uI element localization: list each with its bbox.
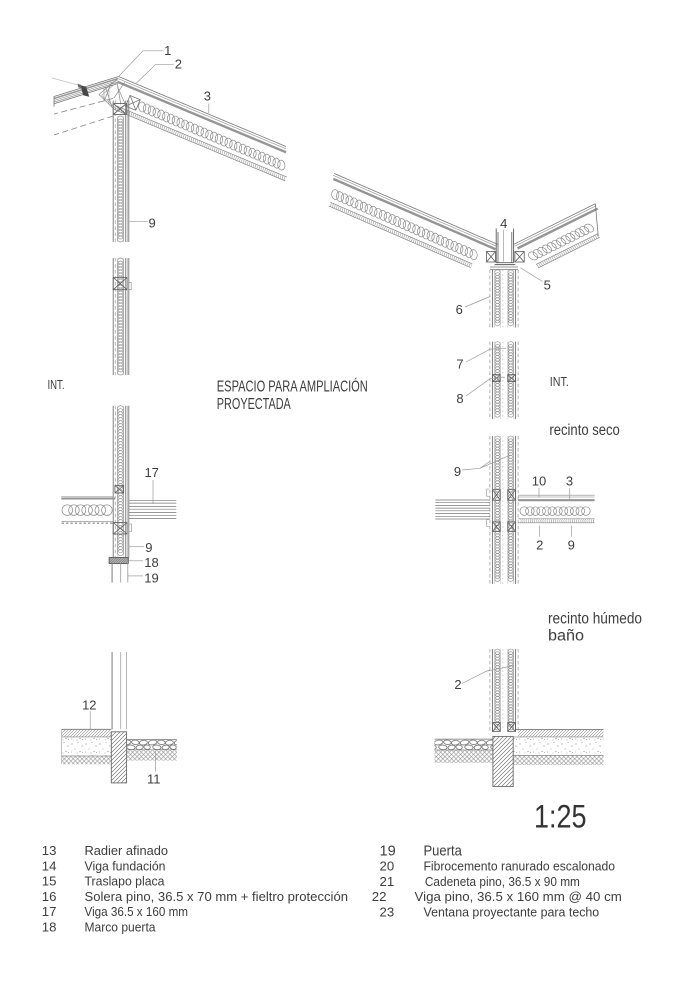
svg-text:22: 22	[372, 889, 387, 904]
svg-text:Solera pino, 36.5 x 70 mm: Solera pino, 36.5 x 70 mm + fieltro prot…	[85, 889, 349, 904]
svg-text:18: 18	[144, 555, 158, 570]
svg-text:Viga fundación: Viga fundación	[85, 858, 166, 873]
svg-text:1:25: 1:25	[534, 798, 587, 834]
svg-text:10: 10	[532, 474, 546, 489]
svg-text:9: 9	[568, 537, 575, 552]
svg-text:9: 9	[145, 540, 152, 555]
svg-text:20: 20	[380, 859, 395, 874]
svg-text:Radier afinado: Radier afinado	[85, 843, 169, 858]
svg-text:Viga pino, 36.5 x 160 m: Viga pino, 36.5 x 160 mm @ 40 cm	[415, 889, 622, 904]
svg-text:Viga 36.5 x 160 mm: Viga 36.5 x 160 mm	[85, 904, 189, 919]
svg-text:Puerta: Puerta	[424, 843, 463, 859]
svg-text:5: 5	[544, 277, 551, 292]
svg-text:3: 3	[204, 88, 211, 103]
svg-text:19: 19	[380, 843, 396, 859]
svg-text:6: 6	[456, 302, 463, 317]
svg-text:recinto húmedo: recinto húmedo	[548, 611, 642, 628]
svg-text:17: 17	[144, 465, 158, 480]
svg-text:12: 12	[82, 698, 96, 713]
svg-text:17: 17	[42, 904, 57, 919]
svg-text:11: 11	[147, 772, 161, 787]
svg-text:2: 2	[454, 677, 461, 692]
svg-text:23: 23	[380, 905, 395, 920]
svg-text:Fibrocemento ranurado escalona: Fibrocemento ranurado escalonado	[424, 859, 616, 874]
svg-text:Ventana proyectante para techo: Ventana proyectante para techo	[424, 905, 600, 920]
svg-text:19: 19	[144, 571, 158, 586]
svg-text:PROYECTADA: PROYECTADA	[217, 396, 291, 413]
svg-text:9: 9	[148, 215, 155, 230]
svg-text:13: 13	[42, 843, 57, 858]
svg-text:Traslapo placa: Traslapo placa	[85, 874, 166, 889]
svg-text:ESPACIO PARA AMPLIACIÓN: ESPACIO PARA AMPLIACIÓN	[217, 376, 368, 395]
svg-text:21: 21	[380, 874, 395, 889]
svg-text:1: 1	[164, 43, 171, 58]
svg-text:7: 7	[456, 357, 463, 372]
svg-text:baño: baño	[548, 628, 584, 645]
svg-text:15: 15	[42, 874, 57, 889]
svg-text:2: 2	[536, 537, 543, 552]
svg-text:recinto seco: recinto seco	[549, 422, 619, 439]
svg-text:2: 2	[175, 57, 182, 72]
svg-text:9: 9	[454, 464, 461, 479]
svg-text:INT.: INT.	[550, 374, 569, 389]
svg-text:4: 4	[500, 216, 507, 231]
svg-text:3: 3	[566, 474, 573, 489]
svg-text:16: 16	[42, 889, 57, 904]
svg-text:18: 18	[42, 920, 57, 935]
svg-text:Marco puerta: Marco puerta	[85, 920, 157, 935]
svg-text:8: 8	[456, 391, 463, 406]
svg-text:INT.: INT.	[48, 378, 65, 392]
svg-text:14: 14	[42, 858, 57, 873]
svg-text:Cadeneta pino, 36.5 x 90 mm: Cadeneta pino, 36.5 x 90 mm	[425, 874, 580, 889]
